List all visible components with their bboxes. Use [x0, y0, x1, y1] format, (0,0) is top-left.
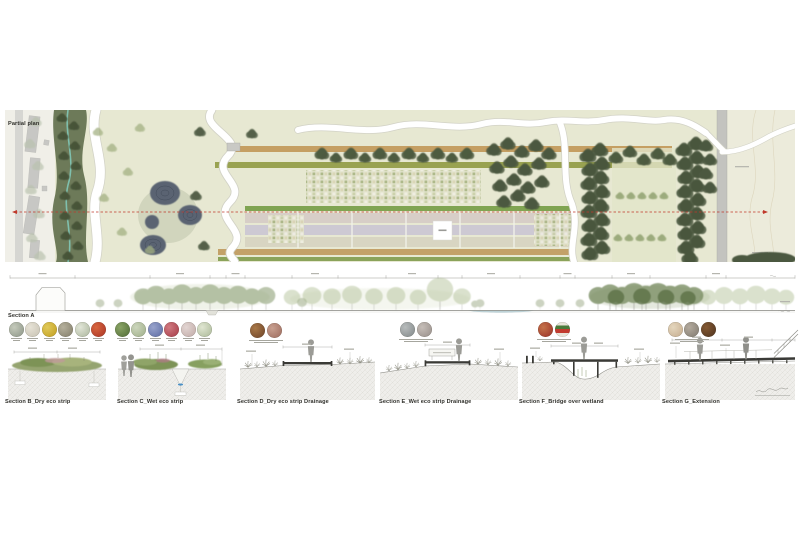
partial-plan-label: Partial plan	[8, 121, 39, 127]
gravel-mix-photo	[417, 322, 432, 337]
pale-bloom-photo	[25, 322, 40, 337]
white-bloom-photo	[197, 322, 212, 337]
wet-grass-photo	[115, 322, 130, 337]
timber-dark-photo	[701, 322, 716, 337]
layer-diagram-photo	[555, 322, 570, 337]
gravel-grey-photo	[400, 322, 415, 337]
section-f-title: Section F_Bridge over wetland	[519, 399, 604, 405]
gravel-pink-photo	[267, 323, 282, 338]
section-c-swatches	[115, 322, 212, 341]
swatch-white-bloom	[197, 322, 212, 341]
section-c-title: Section C_Wet eco strip	[117, 399, 183, 405]
swatch-gravel-mix	[417, 322, 432, 337]
timber-grey-photo	[684, 322, 699, 337]
section-d-title: Section D_Dry eco strip Drainage	[237, 399, 329, 405]
section-g-swatches	[668, 322, 716, 342]
plan-orchard-grid	[534, 214, 574, 246]
section-e-title: Section E_Wet eco strip Drainage	[379, 399, 471, 405]
section-a-label: Section A	[8, 313, 35, 319]
swatch-gravel-pink	[267, 323, 282, 338]
swatch-gravel-grey	[400, 322, 415, 337]
pink-bloom-photo	[181, 322, 196, 337]
swatch-wet-grass	[115, 322, 130, 341]
swatch-red-bloom	[164, 322, 179, 341]
swatch-pink-bloom	[181, 322, 196, 341]
swatch-seed-head	[58, 322, 73, 341]
plan-drawing	[5, 110, 798, 266]
swatch-timber-dark	[701, 322, 716, 337]
swatch-meadow-mix	[131, 322, 146, 341]
section-c-drawing	[118, 345, 226, 401]
presentation-board: Partial plan Section A Section B_Dry eco…	[0, 0, 800, 533]
yellow-bloom-photo	[42, 322, 57, 337]
swatch-layer-diagram	[555, 322, 570, 337]
scale-figure	[308, 339, 314, 362]
section-d-swatches	[249, 323, 283, 343]
timber-pale-photo	[668, 322, 683, 337]
plan-orchard-grid	[306, 170, 481, 203]
mulch-photo	[250, 323, 265, 338]
section-g-title: Section G_Extension	[662, 399, 720, 405]
swatch-mulch	[250, 323, 265, 338]
section-e-swatches	[399, 322, 433, 342]
ramp-railing	[774, 330, 798, 358]
section-b-drawing	[8, 348, 106, 401]
swatch-yellow-bloom	[42, 322, 57, 341]
daisy-photo	[75, 322, 90, 337]
swatch-poppy	[91, 322, 106, 341]
swatch-blue-bloom	[148, 322, 163, 341]
planting-mix-photo	[538, 322, 553, 337]
poppy-photo	[91, 322, 106, 337]
meadow-mix-photo	[131, 322, 146, 337]
plan-road	[717, 110, 727, 262]
swatch-daisy	[75, 322, 90, 341]
swatch-dry-grass	[9, 322, 24, 341]
plan-street	[15, 110, 23, 262]
swatch-caption-bars	[537, 339, 571, 342]
swatch-caption-bars	[249, 340, 283, 343]
red-bloom-photo	[164, 322, 179, 337]
swatch-caption-bars	[675, 339, 709, 342]
section-e-drawing	[380, 338, 518, 400]
section-b-title: Section B_Dry eco strip	[5, 399, 70, 405]
swatch-planting-mix	[538, 322, 553, 337]
scale-figure	[456, 338, 462, 361]
swatch-timber-pale	[668, 322, 683, 337]
plan-building-marker	[433, 221, 452, 240]
section-d-drawing	[240, 339, 375, 400]
section-b-swatches	[9, 322, 106, 341]
elevation-pavilion	[36, 288, 65, 311]
seed-head-photo	[58, 322, 73, 337]
blue-bloom-photo	[148, 322, 163, 337]
dry-grass-photo	[9, 322, 24, 337]
section-f-swatches	[537, 322, 571, 342]
section-a-elevation	[10, 273, 795, 315]
swatch-caption-bars	[399, 339, 433, 342]
section-f-drawing	[522, 337, 660, 400]
swatch-timber-grey	[684, 322, 699, 337]
board-graphics	[0, 0, 800, 533]
swatch-pale-bloom	[25, 322, 40, 341]
scale-figure	[581, 337, 587, 360]
